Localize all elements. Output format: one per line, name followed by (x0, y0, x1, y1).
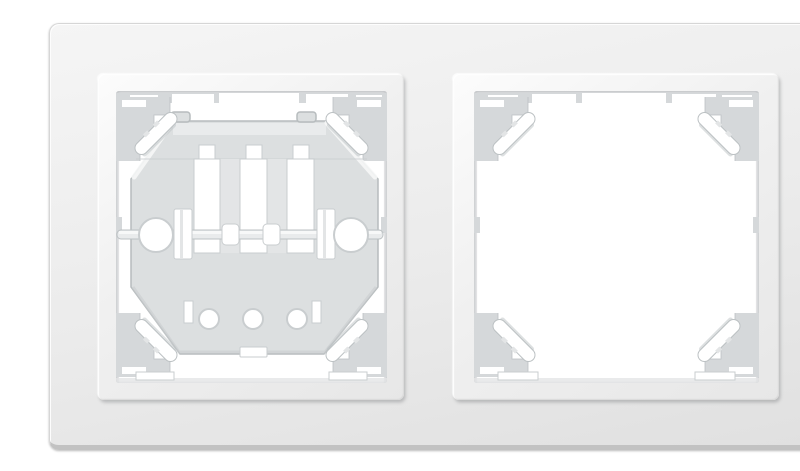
foot-bottom-left (498, 372, 538, 380)
screw-hole-left (139, 218, 173, 252)
screw-hole-right (334, 218, 368, 252)
foot-bottom-right (329, 372, 367, 380)
right-window-graphic (474, 91, 759, 383)
frame-outer-plate (49, 23, 800, 450)
corner-assembly-bottom-right (695, 313, 759, 377)
right-window-opening (474, 91, 759, 383)
right-window-surround (453, 74, 779, 400)
shaft-collar-left (222, 224, 239, 245)
shaft-bracket-right (317, 209, 335, 259)
shaft-bracket-left (174, 209, 192, 259)
bottom-tab-right (312, 301, 321, 323)
left-window-surround (98, 74, 404, 400)
foot-bottom-right (695, 372, 735, 380)
mechanism-top-strip (173, 123, 326, 135)
bottom-tab-left (184, 301, 193, 323)
left-window-graphic (116, 91, 387, 383)
product-photo (40, 16, 800, 455)
shaft-collar-right (263, 224, 280, 245)
mechanism-ear-right (297, 112, 316, 122)
left-window-opening (116, 91, 387, 383)
mounting-mechanism (117, 112, 383, 357)
side-tab-right (753, 217, 759, 233)
corner-assembly-top-right (695, 97, 759, 161)
bottom-holes (199, 309, 307, 329)
corner-assembly-bottom-left (474, 313, 538, 377)
corner-assembly-top-left (474, 97, 538, 161)
foot-bottom-left (136, 372, 174, 380)
bottom-center-tab (240, 347, 267, 357)
side-tab-left (474, 217, 480, 233)
